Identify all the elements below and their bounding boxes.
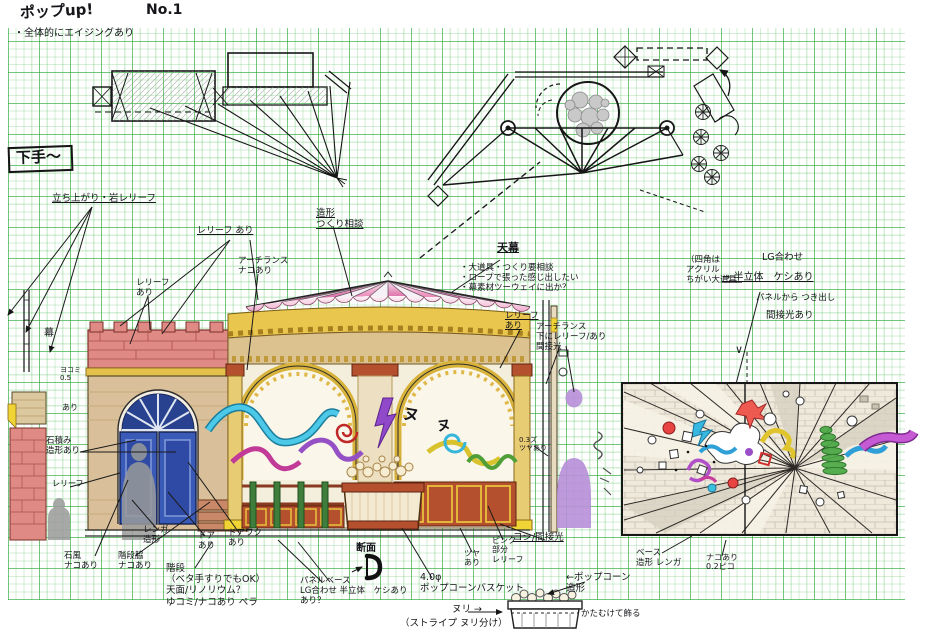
- deco-nu-mark-1: ヌ: [401, 405, 420, 426]
- design-sheet: ポップup! No.1 ・全体的にエイジングあり 下手〜 立ち上がり・岩レリーフ…: [0, 0, 930, 638]
- label-relief-ari-right: レリーフ あり: [505, 311, 539, 331]
- aging-note: ・全体的にエイジングあり: [14, 28, 134, 40]
- label-kaidan-notes: 階段 （ベタ手すりでもOK） 天面/リノリウム？ ゆコミ/ナコあり ペラ: [166, 563, 265, 608]
- label-maku: 幕: [44, 328, 54, 340]
- label-renga-zokei: レンガ 造形: [143, 525, 169, 545]
- plan-view-left: [93, 53, 351, 187]
- label-standup-relief: 立ち上がり・岩レリーフ: [52, 193, 156, 204]
- deco-nu-mark-2: ヌ: [436, 417, 452, 435]
- label-han-rittai: → 半立体 ケシあり: [722, 272, 814, 284]
- label-relief-ari-left: レリーフ あり: [136, 278, 170, 298]
- label-panel-tsukidashi: パネルから つき出し: [756, 293, 835, 303]
- label-relief-ari-top: レリーフ あり: [197, 226, 253, 237]
- burst-panel: [622, 352, 914, 535]
- label-popcorn-zokei: ←ポップコーン 造形: [566, 572, 631, 594]
- label-relief-small: レリーフ: [52, 479, 84, 488]
- label-tenmaku-notes: ・大道具・つくり要相談 ・ロープで張った感じ出したい ・幕素材ツーウェイに出か？: [460, 263, 579, 293]
- v-mark: ∨: [735, 344, 743, 357]
- label-arch-lance-shita: アーチランス 下にレリーフ/あり 間接光: [536, 322, 606, 352]
- label-tsuya-ari: ツヤ あり: [464, 549, 480, 568]
- label-popcorn-basket: 4.0φ ポップコーンバスケット: [420, 572, 524, 594]
- label-danmen: 断面: [356, 543, 376, 555]
- label-zero3: 0.3ズ ツヤあり: [519, 436, 547, 453]
- label-lg-awase: LG合わせ: [762, 252, 803, 263]
- label-naco-02: ナコあり 0.2ピコ: [706, 553, 738, 572]
- label-katamukete: かたむけて飾る: [581, 609, 641, 619]
- label-kansetsu-ari: 間接光あり: [766, 310, 814, 321]
- label-stripe-nuri: （ストライプ ヌリ分け）: [400, 618, 508, 629]
- plan-view-right: [428, 46, 738, 212]
- page-number: No.1: [146, 2, 182, 19]
- label-ishizumi: 石積み 造形あり: [46, 436, 80, 456]
- label-door-ari: ドア あり: [198, 531, 215, 551]
- label-doorwaku-ari: ドアワク あり: [228, 528, 262, 548]
- label-koshi-kansetsu: コシ/間接光: [513, 532, 564, 543]
- label-ari-small: あり: [62, 403, 78, 412]
- label-nuri-arrow: ヌリ →: [452, 604, 482, 615]
- label-kaidan-waki: 階段脇 ナコあり: [118, 551, 152, 571]
- label-arch-lance-naco: アーチランス ナコあり: [238, 256, 288, 276]
- label-yokomi: ヨコミ 0.5: [60, 366, 81, 383]
- label-base-renga: ベース 造形 レンガ: [636, 548, 681, 568]
- elevation-left-tower: [86, 322, 248, 540]
- label-tenmaku: 天幕: [497, 242, 519, 255]
- left-section: [8, 290, 70, 540]
- danmen-d-mark: [367, 556, 380, 578]
- stage-side-label: 下手〜: [8, 145, 74, 173]
- label-zokei-tsukuri: 造形 つくり相談: [316, 208, 364, 230]
- popcorn-bucket-sketch: [508, 589, 582, 628]
- label-panel-base: パネルベース LG合わせ 半立体 ケシあり あり？: [300, 576, 408, 606]
- label-ishifu: 石風 ナコあり: [64, 551, 98, 571]
